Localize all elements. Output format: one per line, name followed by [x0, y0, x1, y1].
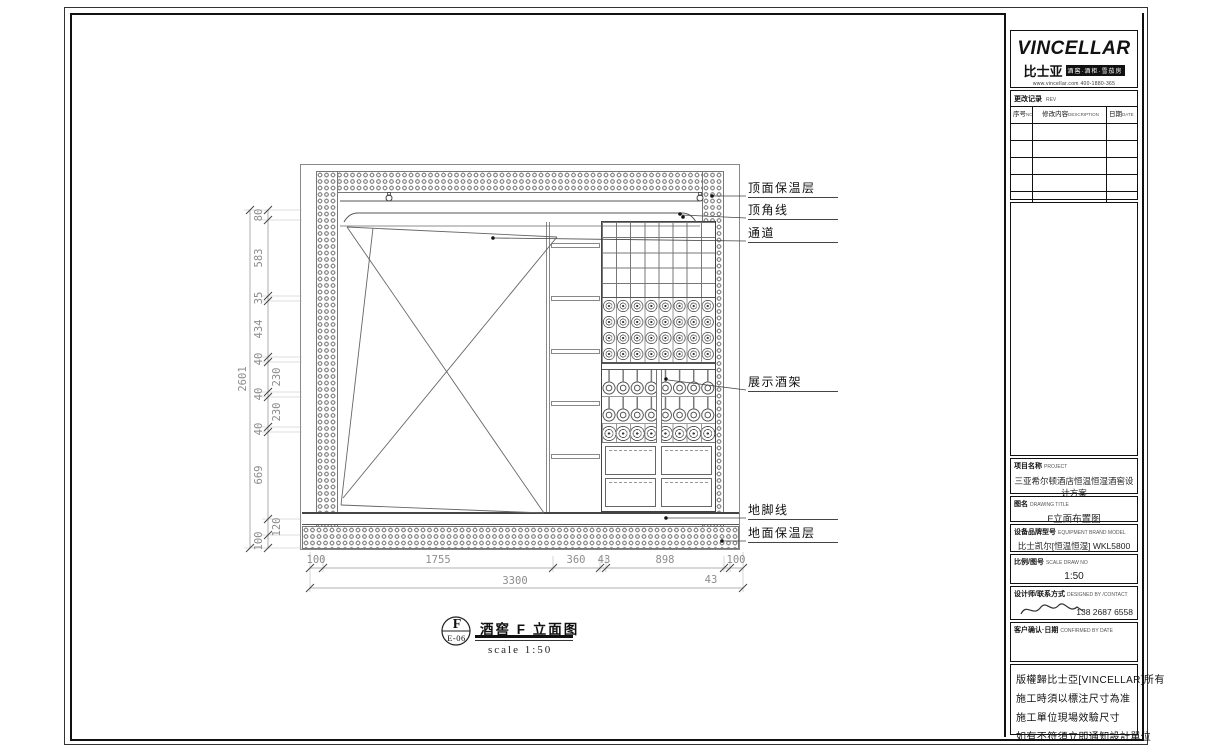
dim-left-10: 120	[271, 518, 283, 537]
brand-logo: VINCELLAR	[1011, 38, 1137, 60]
dim-left-7: 230	[271, 403, 283, 422]
rack-shelf-band	[602, 362, 715, 370]
note-line: 施工單位現場效驗尺寸	[1016, 709, 1132, 728]
top-insulation-band	[316, 171, 724, 193]
dim-left-8: 40	[253, 423, 265, 436]
dim-bottom-extra: 43	[705, 574, 718, 586]
brand-tagline: 酒窖·酒柜·雪茄房	[1066, 65, 1125, 76]
dim-bottom-3: 43	[598, 554, 611, 566]
floor-insulation-band	[302, 526, 739, 549]
label-floor-insulation: 地面保温层	[748, 526, 838, 543]
bubble-code: E-06	[440, 633, 473, 643]
dim-left-0: 80	[253, 209, 265, 222]
bubble-letter: F	[449, 617, 465, 633]
brand-contact-line: www.vincellar.com 400-1880-365	[1011, 81, 1137, 87]
label-passage: 通道	[748, 226, 838, 243]
brand-logo-cn: 比士亚	[1023, 61, 1062, 80]
revision-header-row: 序号NO 修改内容DESCRIPTION 日期DATE	[1011, 107, 1137, 124]
label-baseboard: 地脚线	[748, 503, 838, 520]
rack-center-divider	[656, 370, 662, 443]
revision-empty-row	[1011, 124, 1137, 141]
revision-table: 更改记录 REV 序号NO 修改内容DESCRIPTION 日期DATE	[1010, 90, 1138, 200]
dim-left-total: 2601	[237, 366, 249, 391]
cabinet-door	[605, 446, 656, 475]
scale-box: 比例/图号SCALE DRAW NO 1:50	[1010, 554, 1138, 584]
dim-bottom-1: 1755	[425, 554, 450, 566]
note-line: 施工時須以標注尺寸為准	[1016, 690, 1132, 709]
shelf	[551, 401, 600, 406]
revision-title: 更改记录	[1014, 96, 1042, 103]
cabinet-door	[661, 478, 712, 507]
equipment-box: 设备品牌型号EQUIPMENT BRAND MODEL 比士凯尔[恒温恒湿] W…	[1010, 524, 1138, 552]
drawing-name-box: 图名DRAWING TITLE F立面布置图	[1010, 496, 1138, 522]
dim-left-1: 583	[253, 249, 265, 268]
note-line: 如有不符須立即通知設計單位	[1016, 728, 1132, 747]
dim-left-5: 230	[271, 368, 283, 387]
dim-bottom-5: 100	[727, 554, 746, 566]
scale-value: 1:50	[1011, 571, 1137, 582]
dim-bottom-4: 898	[656, 554, 675, 566]
dim-bottom-total: 3300	[502, 575, 527, 587]
title-rule-thin	[475, 640, 573, 641]
revision-empty-row	[1011, 141, 1137, 158]
rack-cubby-grid	[602, 222, 715, 298]
shelf-column-rail	[546, 222, 550, 512]
shelf	[551, 296, 600, 301]
notes-box: 版權歸比士亞[VINCELLAR]所有 施工時須以標注尺寸為准 施工單位現場效驗…	[1010, 664, 1138, 735]
designer-phone: 138 2687 6558	[1076, 607, 1133, 617]
note-line: 版權歸比士亞[VINCELLAR]所有	[1016, 671, 1132, 690]
dim-left-11: 100	[253, 532, 265, 551]
shelf	[551, 454, 600, 459]
dim-left-6: 40	[253, 388, 265, 401]
title-block: VINCELLAR 比士亚 酒窖·酒柜·雪茄房 www.vincellar.co…	[1004, 13, 1142, 737]
cabinet-door	[661, 446, 712, 475]
dim-left-9: 669	[253, 466, 265, 485]
label-top-insulation: 顶面保温层	[748, 181, 838, 198]
revision-empty-row	[1011, 158, 1137, 175]
sheet-scale-text: scale 1:50	[488, 644, 552, 656]
cabinet-door	[605, 478, 656, 507]
shelf	[551, 243, 600, 248]
dim-left-2: 35	[253, 292, 265, 305]
logo-box: VINCELLAR 比士亚 酒窖·酒柜·雪茄房 www.vincellar.co…	[1010, 30, 1138, 88]
wine-rack	[601, 221, 716, 512]
shelf	[551, 349, 600, 354]
label-display-rack: 展示酒架	[748, 375, 838, 392]
left-insulation-band	[316, 171, 338, 527]
label-crown-line: 顶角线	[748, 203, 838, 220]
equipment-model: 比士凯尔[恒温恒湿] WKL5800	[1011, 540, 1137, 552]
drawing-name: F立面布置图	[1011, 511, 1137, 525]
revision-empty-row	[1011, 175, 1137, 192]
designer-box: 设计师/联系方式DESIGNED BY /CONTACT 138 2687 65…	[1010, 586, 1138, 620]
baseboard	[302, 512, 739, 525]
rack-cabinet	[602, 443, 715, 510]
dim-bottom-2: 360	[567, 554, 586, 566]
title-block-spacer	[1010, 202, 1138, 456]
title-rule-thick	[475, 635, 573, 638]
rack-horizontal-bottles	[602, 298, 715, 362]
confirm-box: 客户确认·日期CONFIRMED BY DATE	[1010, 622, 1138, 662]
dim-left-3: 434	[253, 320, 265, 339]
dim-left-4: 40	[253, 353, 265, 366]
dim-bottom-0: 100	[307, 554, 326, 566]
project-box: 项目名称PROJECT 三亚希尔顿酒店恒温恒湿酒窖设计方案	[1010, 458, 1138, 494]
